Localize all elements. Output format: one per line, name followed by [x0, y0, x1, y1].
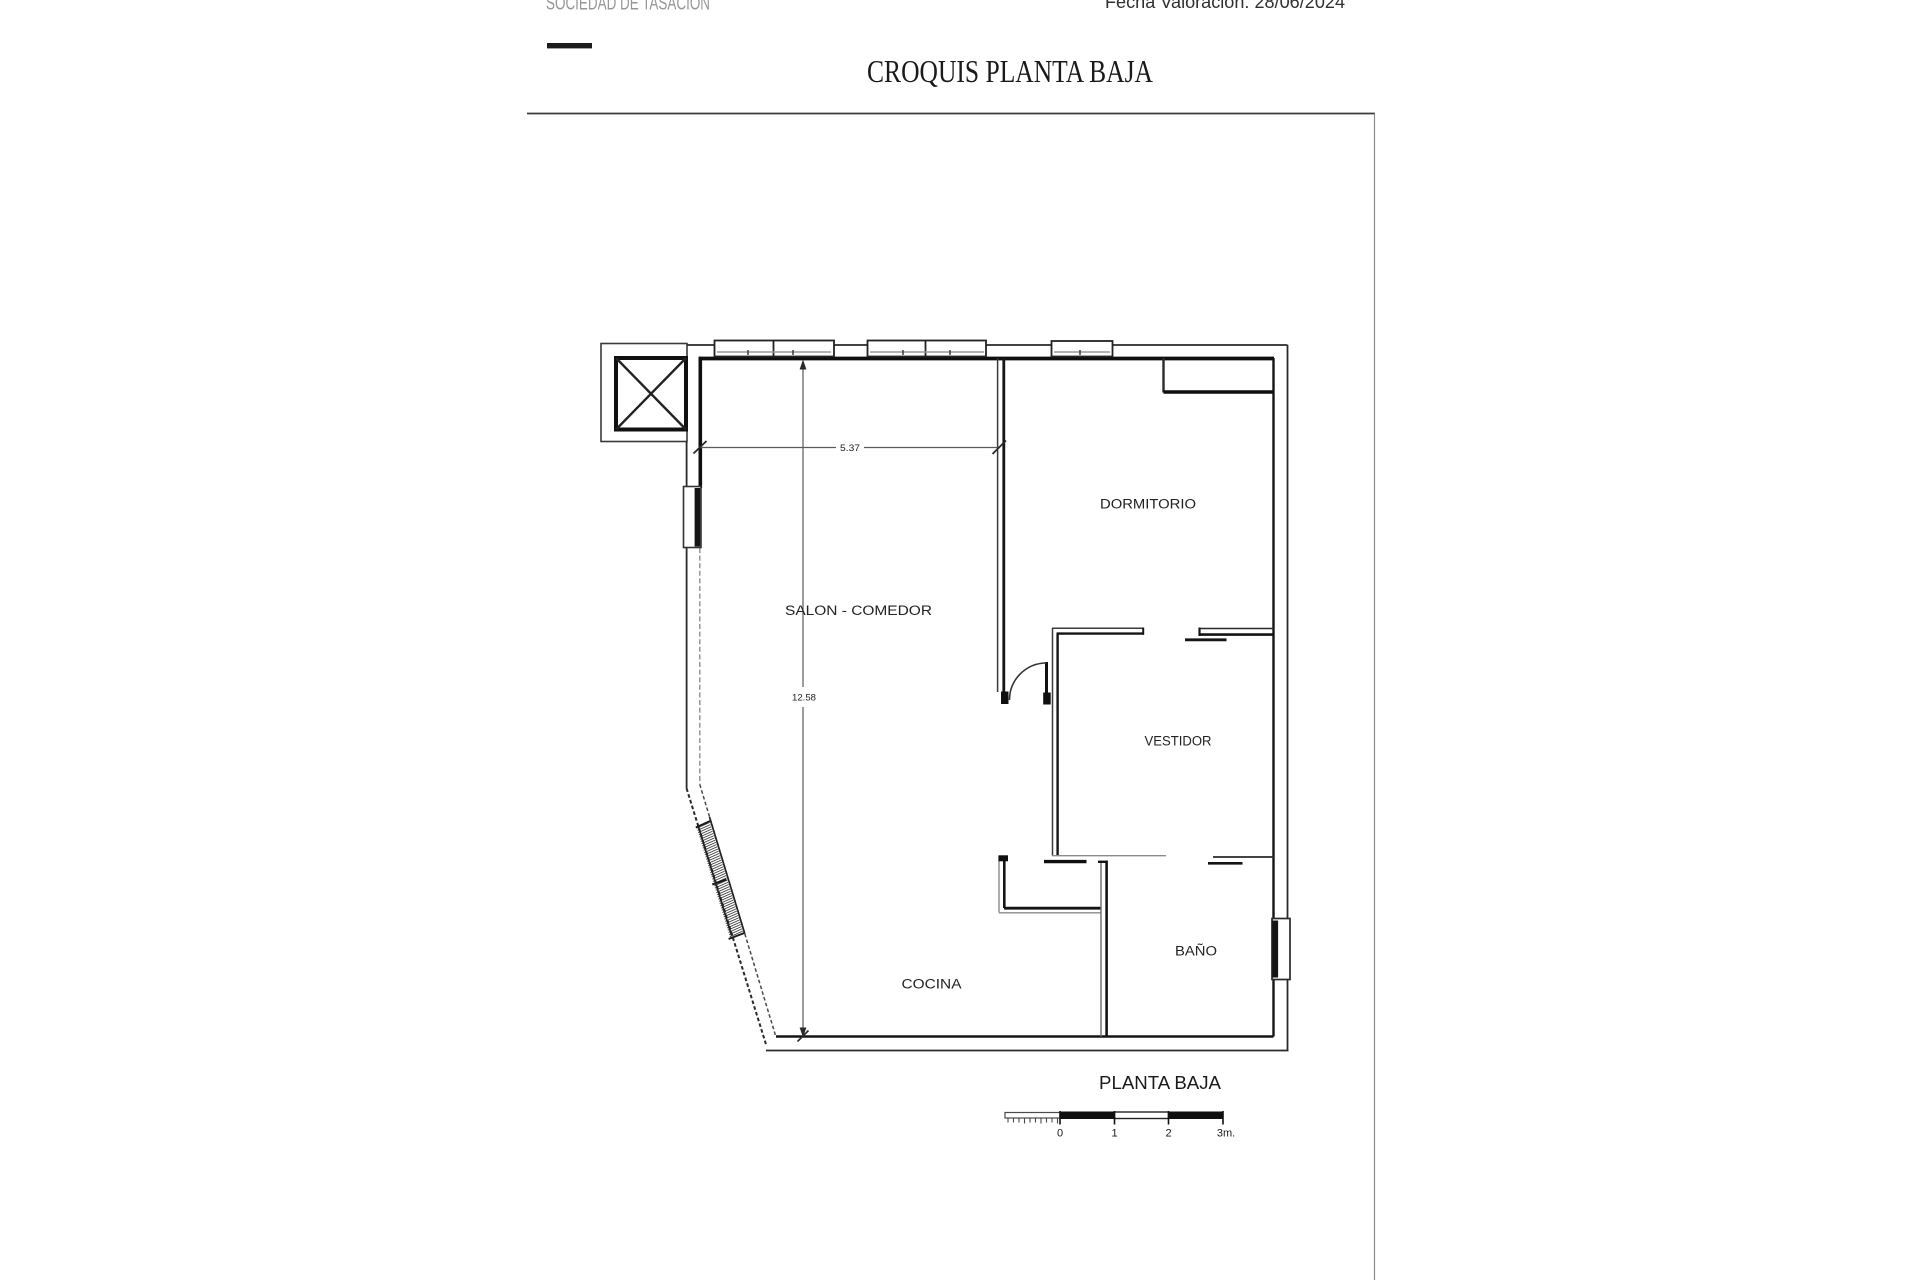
svg-text:1: 1: [1111, 1128, 1117, 1140]
svg-text:SOCIEDAD DE TASACIÓN: SOCIEDAD DE TASACIÓN: [546, 0, 710, 15]
svg-text:SALON - COMEDOR: SALON - COMEDOR: [785, 603, 932, 618]
svg-text:2: 2: [1165, 1128, 1171, 1140]
svg-text:DORMITORIO: DORMITORIO: [1100, 497, 1196, 512]
svg-text:Fecha Valoración: 28/06/2024: Fecha Valoración: 28/06/2024: [1105, 0, 1345, 12]
svg-text:BAÑO: BAÑO: [1175, 944, 1217, 959]
svg-text:0: 0: [1057, 1128, 1063, 1140]
svg-text:3m.: 3m.: [1217, 1128, 1235, 1140]
svg-text:12.58: 12.58: [792, 693, 816, 704]
svg-text:COCINA: COCINA: [902, 977, 962, 992]
svg-text:PLANTA BAJA: PLANTA BAJA: [1099, 1072, 1222, 1093]
svg-text:5.37: 5.37: [840, 443, 860, 454]
svg-text:CROQUIS PLANTA BAJA: CROQUIS PLANTA BAJA: [867, 53, 1153, 89]
svg-text:VESTIDOR: VESTIDOR: [1145, 734, 1212, 749]
